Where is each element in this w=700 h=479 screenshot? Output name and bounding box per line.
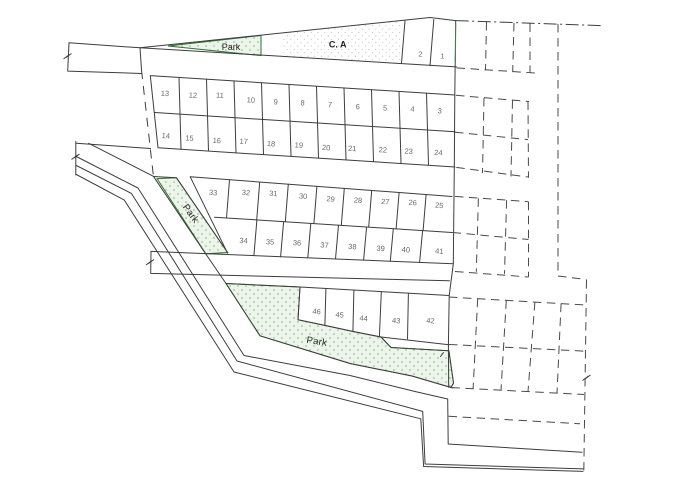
svg-text:22: 22 [378, 145, 387, 155]
svg-text:5: 5 [383, 103, 388, 112]
svg-text:43: 43 [392, 316, 401, 326]
svg-text:19: 19 [294, 140, 303, 150]
svg-text:34: 34 [239, 236, 248, 245]
svg-text:30: 30 [299, 191, 308, 201]
svg-text:13: 13 [161, 89, 170, 99]
svg-text:39: 39 [376, 244, 385, 253]
svg-text:46: 46 [312, 307, 321, 317]
svg-text:6: 6 [355, 102, 360, 111]
svg-text:32: 32 [241, 188, 250, 198]
svg-text:11: 11 [216, 91, 224, 100]
svg-text:41: 41 [435, 246, 444, 255]
svg-text:20: 20 [322, 143, 331, 153]
svg-text:25: 25 [435, 201, 444, 211]
svg-text:24: 24 [434, 148, 443, 158]
svg-text:28: 28 [353, 195, 362, 205]
svg-text:38: 38 [348, 242, 357, 251]
svg-text:26: 26 [408, 198, 417, 208]
svg-text:2: 2 [418, 50, 422, 59]
svg-text:36: 36 [293, 238, 302, 247]
svg-text:17: 17 [239, 137, 248, 147]
svg-text:C. A: C. A [329, 40, 347, 50]
svg-text:23: 23 [404, 147, 413, 157]
svg-text:27: 27 [381, 197, 390, 207]
svg-text:3: 3 [437, 106, 442, 115]
svg-text:40: 40 [401, 245, 410, 254]
svg-text:16: 16 [212, 136, 221, 146]
svg-text:37: 37 [320, 240, 329, 249]
svg-text:31: 31 [269, 189, 278, 199]
svg-text:7: 7 [328, 100, 333, 109]
svg-text:21: 21 [348, 144, 357, 154]
svg-text:8: 8 [300, 98, 305, 107]
svg-text:10: 10 [246, 95, 255, 105]
svg-text:44: 44 [359, 313, 368, 323]
svg-text:35: 35 [266, 237, 275, 246]
svg-text:42: 42 [426, 316, 435, 326]
svg-text:14: 14 [161, 131, 170, 141]
svg-text:1: 1 [440, 52, 444, 61]
svg-text:Park: Park [222, 42, 241, 52]
svg-text:12: 12 [189, 91, 198, 101]
svg-text:18: 18 [267, 139, 276, 149]
svg-text:33: 33 [209, 188, 218, 198]
svg-text:4: 4 [410, 104, 415, 113]
svg-text:45: 45 [335, 310, 344, 320]
svg-text:29: 29 [326, 194, 335, 204]
svg-text:9: 9 [273, 97, 278, 106]
svg-text:15: 15 [185, 133, 194, 143]
